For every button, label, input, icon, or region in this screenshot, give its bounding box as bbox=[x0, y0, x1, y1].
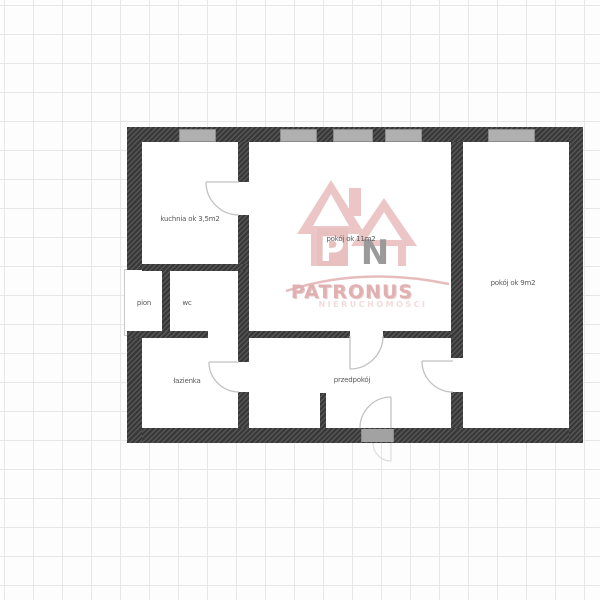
room-label-przedpokoj: przedpokój bbox=[334, 376, 371, 384]
room-label-kuchnia: kuchnia ok 3,5m2 bbox=[160, 215, 219, 223]
wall-kitchen-right-upper bbox=[238, 142, 249, 182]
window-room11-b bbox=[333, 129, 373, 142]
wall-hall-top-right bbox=[383, 331, 451, 338]
floorplan-canvas: P N PATRONUS NIERUCHOMOŚCI bbox=[0, 0, 600, 600]
room-label-pokoj-9: pokój ok 9m2 bbox=[491, 279, 536, 287]
wall-kitchen-bottom bbox=[142, 264, 249, 271]
room-label-pokoj-11: pokój ok 11m2 bbox=[326, 235, 375, 243]
wall-pion-right bbox=[162, 270, 170, 334]
wall-bottom bbox=[127, 428, 583, 443]
wall-bathroom-right-lower bbox=[238, 392, 249, 428]
room-label-wc: wc bbox=[182, 299, 191, 307]
window-room11-c bbox=[385, 129, 422, 142]
room-label-lazienka: łazienka bbox=[173, 377, 200, 385]
wall-room9-left-upper bbox=[451, 142, 463, 358]
entry-door-threshold bbox=[361, 429, 394, 442]
window-kitchen bbox=[179, 129, 216, 142]
wall-room9-left-lower bbox=[451, 392, 463, 428]
window-room11-a bbox=[280, 129, 317, 142]
wall-hall-top-left bbox=[248, 331, 350, 338]
wall-kitchen-right-mid bbox=[238, 215, 249, 362]
wall-right bbox=[569, 127, 583, 443]
wall-hall-stub bbox=[320, 393, 326, 428]
wall-left-lower bbox=[127, 334, 142, 443]
door-arc-entry-outside bbox=[373, 443, 391, 461]
room-label-pion: pion bbox=[137, 299, 151, 307]
wall-left-upper bbox=[127, 127, 142, 270]
wall-wc-bottom bbox=[127, 331, 208, 338]
window-room9 bbox=[488, 129, 535, 142]
